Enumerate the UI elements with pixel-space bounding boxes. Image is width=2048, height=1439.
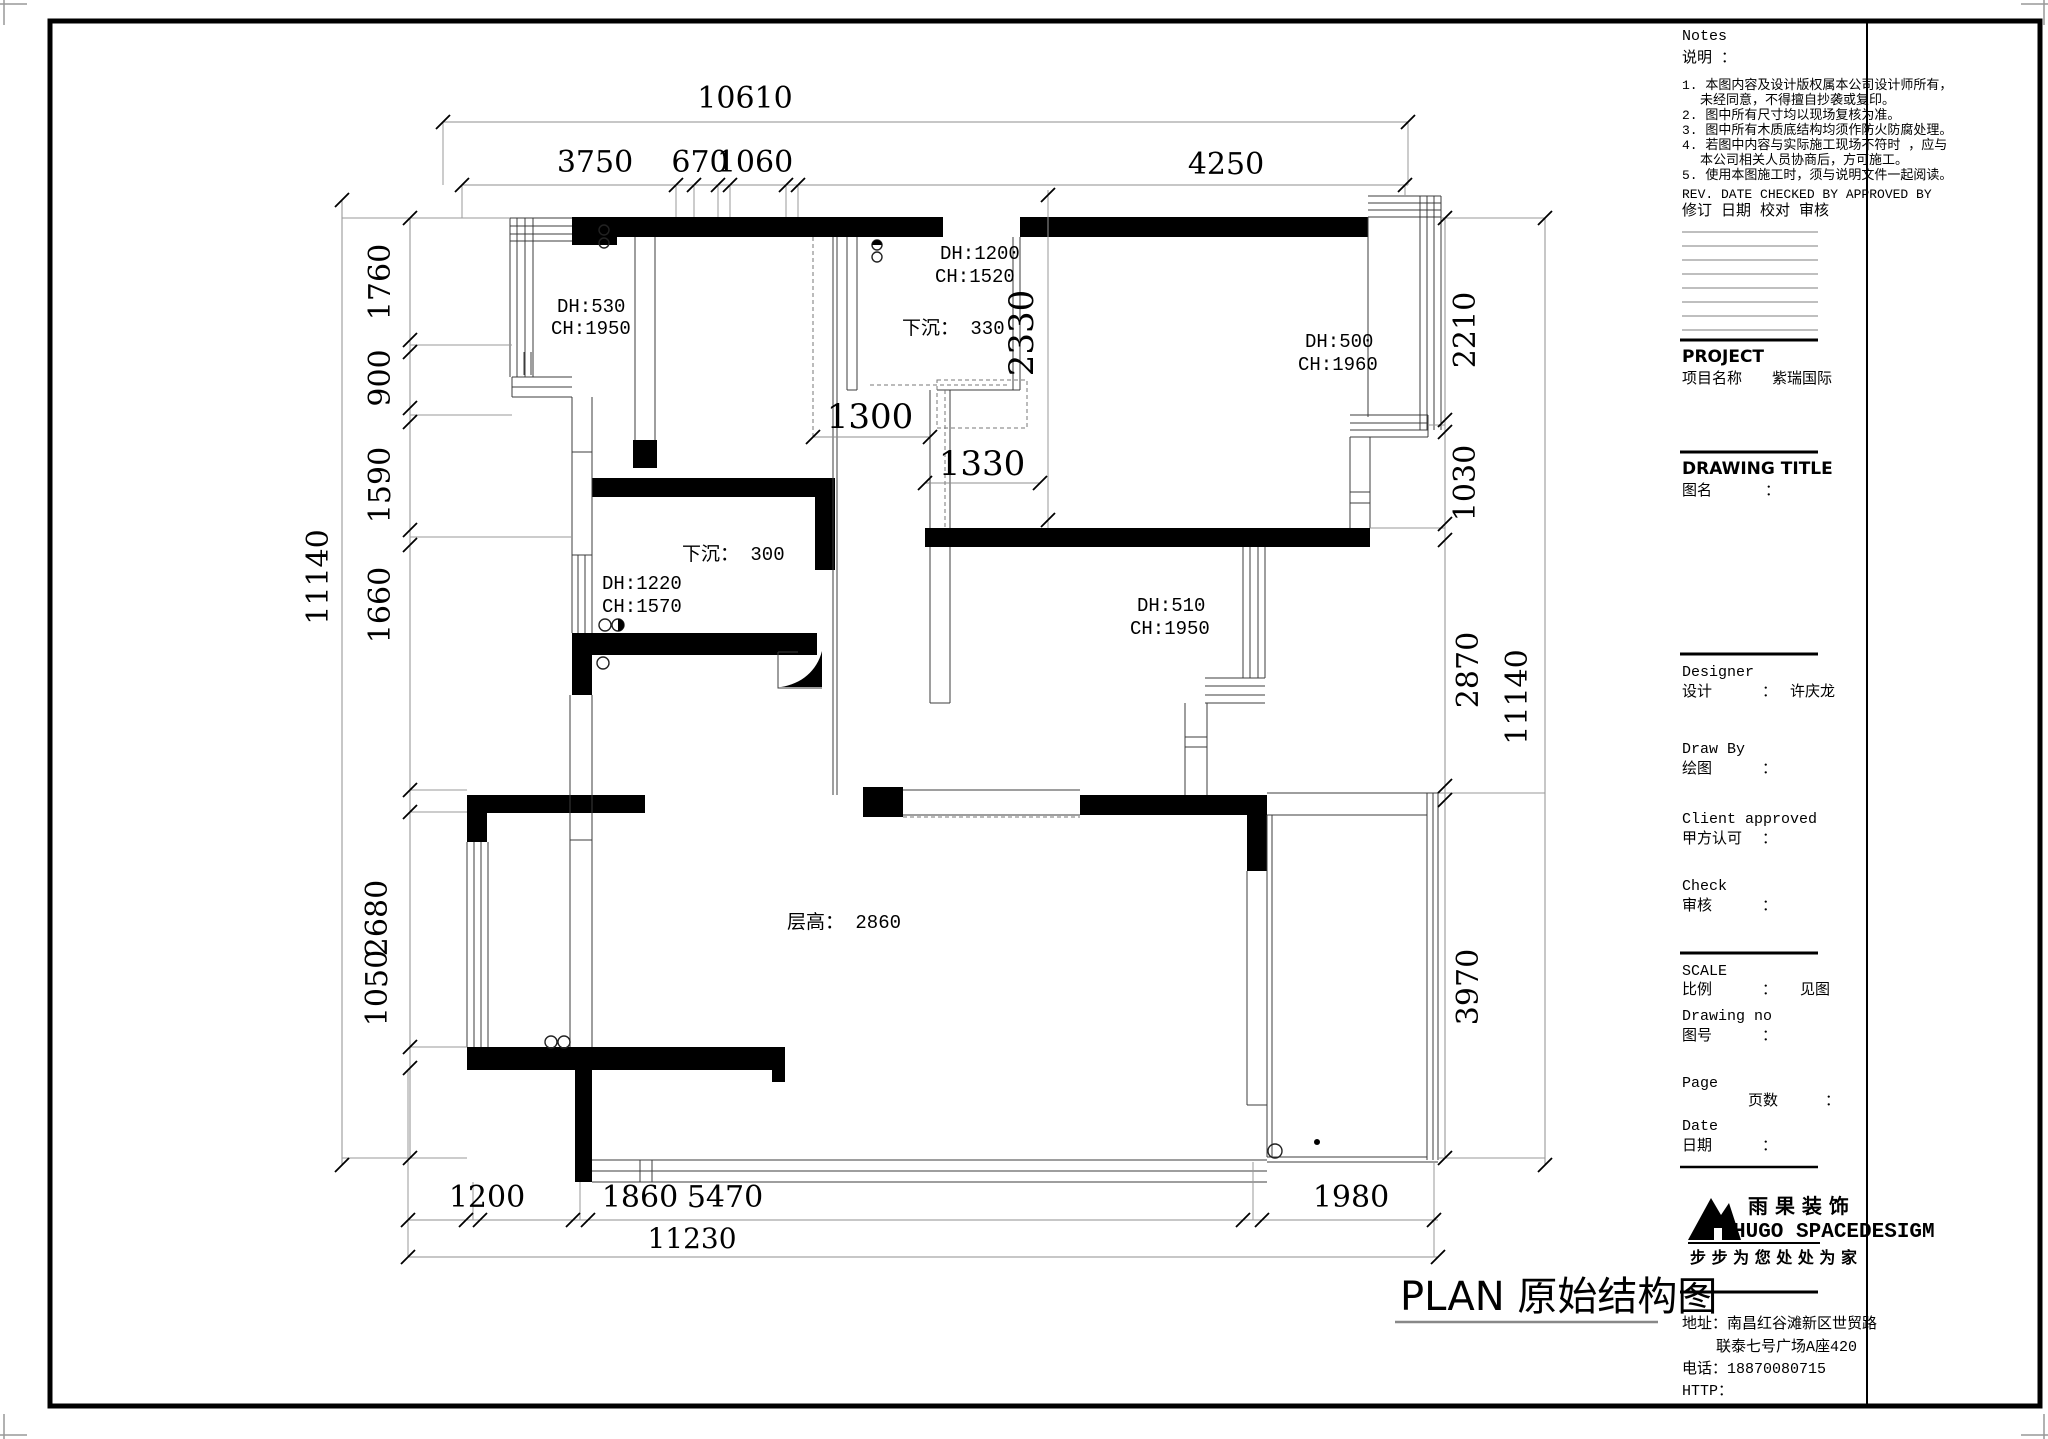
label-ch1520: CH:1520 (935, 266, 1015, 288)
brand-slogan: 步 步 为 您 处 处 为 家 (1690, 1248, 1858, 1267)
note-line-5: 4. 若图中内容与实际施工现场不符时 ，应与 (1682, 137, 1947, 153)
drawing-title-label-zh: 图名 (1682, 482, 1712, 500)
note-line-4: 3. 图中所有木质底结构均须作防火防腐处理。 (1682, 122, 1952, 138)
check-label-zh: 审核 (1682, 897, 1712, 915)
label-dh1220: DH:1220 (602, 573, 682, 595)
dim-interior-1330: 1330 (939, 444, 1026, 484)
notes-heading-zh: 说明 ： (1682, 49, 1736, 67)
dim-left-1660: 1660 (363, 567, 398, 643)
client-label-en: Client approved (1682, 811, 1817, 828)
dim-interior-1300: 1300 (827, 397, 914, 437)
dim-bottom-total: 11230 (647, 1222, 736, 1255)
rev-table (1682, 232, 1818, 330)
dim-left-1050: 1050 (360, 950, 395, 1026)
label-dh510: DH:510 (1137, 595, 1205, 617)
scale-colon: ： (1762, 982, 1777, 999)
date-label-zh: 日期 (1682, 1137, 1712, 1155)
dim-top-3750: 3750 (557, 145, 633, 180)
label-sunk-330: 下沉： 330 (902, 317, 1005, 340)
designer-label-en: Designer (1682, 664, 1754, 681)
drawing-title-label-en: DRAWING TITLE (1682, 459, 1833, 479)
note-line-3: 2. 图中所有尺寸均以现场复核为准。 (1682, 108, 1900, 123)
dim-bottom-1980: 1980 (1313, 1180, 1389, 1215)
dim-bottom-1860: 1860 (602, 1180, 678, 1215)
dim-right-2870: 2870 (1451, 632, 1486, 708)
brand-en: HUGO SPACEDESIGM (1733, 1221, 1935, 1244)
label-dh500: DH:500 (1305, 331, 1373, 353)
label-dh530: DH:530 (557, 296, 625, 318)
note-line-1: 1. 本图内容及设计版权属本公司设计师所有， (1682, 77, 1952, 93)
dim-left-total: 11140 (301, 529, 336, 624)
drawby-colon: ： (1762, 761, 1777, 778)
drawingno-label-zh: 图号 (1682, 1027, 1712, 1045)
logo: 雨 果 装 饰 HUGO SPACEDESIGM 步 步 为 您 处 处 为 家 (1688, 1194, 1935, 1267)
scale-label-en: SCALE (1682, 963, 1727, 980)
note-line-6: 本公司相关人员协商后，方可施工。 (1700, 152, 1908, 168)
rev-header-zh: 修订 日期 校对 审核 (1682, 202, 1829, 220)
dim-right-total: 11140 (1500, 649, 1535, 744)
project-label-en: PROJECT (1682, 347, 1764, 367)
dim-top-total: 10610 (697, 81, 792, 116)
notes-heading-en: Notes (1682, 28, 1727, 45)
plan-title: PLAN 原始结构图 (1400, 1274, 1717, 1320)
date-colon: ： (1762, 1138, 1777, 1155)
client-label-zh: 甲方认可 (1682, 830, 1742, 848)
rev-header-en: REV. DATE CHECKED BY APPROVED BY (1682, 187, 1932, 202)
floor-plan-sheet: 10610 3750 670 1060 4250 11140 1760 900 … (0, 0, 2048, 1439)
dim-interior-2330: 2330 (1002, 290, 1042, 377)
door-swing (778, 651, 822, 688)
dim-right-1030: 1030 (1448, 445, 1483, 521)
dim-left-900: 900 (363, 349, 398, 406)
pipe-symbols (545, 225, 1320, 1158)
drawby-label-en: Draw By (1682, 741, 1745, 758)
date-label-en: Date (1682, 1118, 1718, 1135)
address-line-1: 地址：南昌红谷滩新区世贸路 (1682, 1315, 1877, 1333)
designer-colon: ： (1762, 684, 1777, 701)
title-block: Notes 说明 ： 1. 本图内容及设计版权属本公司设计师所有， 未经同意，不… (1680, 28, 1952, 1400)
page-label-en: Page (1682, 1075, 1718, 1092)
designer-label-zh: 设计 (1682, 683, 1712, 701)
dim-left-2680: 2680 (360, 880, 395, 956)
label-sunk-300: 下沉： 300 (682, 543, 785, 566)
label-ch1950a: CH:1950 (551, 318, 631, 340)
dim-bottom-5470: 5470 (687, 1180, 763, 1215)
label-dh1200: DH:1200 (940, 243, 1020, 265)
dimensions: 10610 3750 670 1060 4250 11140 1760 900 … (301, 81, 1552, 1264)
plan-title-group: PLAN 原始结构图 (1395, 1274, 1717, 1322)
dim-right-3970: 3970 (1451, 949, 1486, 1025)
scale-value: 见图 (1800, 981, 1830, 999)
designer-value: 许庆龙 (1790, 683, 1835, 701)
http: HTTP： (1682, 1383, 1733, 1400)
label-floor-height: 层高： 2860 (787, 911, 901, 934)
dim-bottom-1200: 1200 (449, 1180, 525, 1215)
check-label-en: Check (1682, 878, 1727, 895)
drawby-label-zh: 绘图 (1682, 760, 1712, 778)
project-name: 紫瑞国际 (1772, 370, 1832, 388)
dim-left-1760: 1760 (363, 244, 398, 320)
check-colon: ： (1762, 898, 1777, 915)
structural-walls (467, 217, 1370, 1182)
drawingno-colon: ： (1762, 1028, 1777, 1045)
label-ch1960: CH:1960 (1298, 354, 1378, 376)
dim-top-4250: 4250 (1188, 147, 1264, 182)
address-line-2: 联泰七号广场A座420 (1716, 1338, 1857, 1356)
client-colon: ： (1762, 831, 1777, 848)
phone: 电话：18870080715 (1682, 1360, 1826, 1378)
brand-zh: 雨 果 装 饰 (1748, 1194, 1849, 1218)
dim-left-1590: 1590 (363, 447, 398, 523)
drawingno-label-en: Drawing no (1682, 1008, 1772, 1025)
label-ch1570: CH:1570 (602, 596, 682, 618)
project-label-zh: 项目名称 (1682, 370, 1742, 388)
dim-right-2210: 2210 (1448, 292, 1483, 368)
label-ch1950b: CH:1950 (1130, 618, 1210, 640)
page-label-zh: 页数 (1748, 1092, 1778, 1110)
note-line-7: 5. 使用本图施工时，须与说明文件一起阅读。 (1682, 167, 1952, 183)
note-line-2: 未经同意，不得擅自抄袭或复印。 (1700, 92, 1895, 108)
drawing-title-colon: ： (1765, 483, 1780, 500)
scale-label-zh: 比例 (1682, 981, 1712, 999)
page-colon: ： (1825, 1093, 1840, 1110)
dim-top-1060: 1060 (717, 145, 793, 180)
